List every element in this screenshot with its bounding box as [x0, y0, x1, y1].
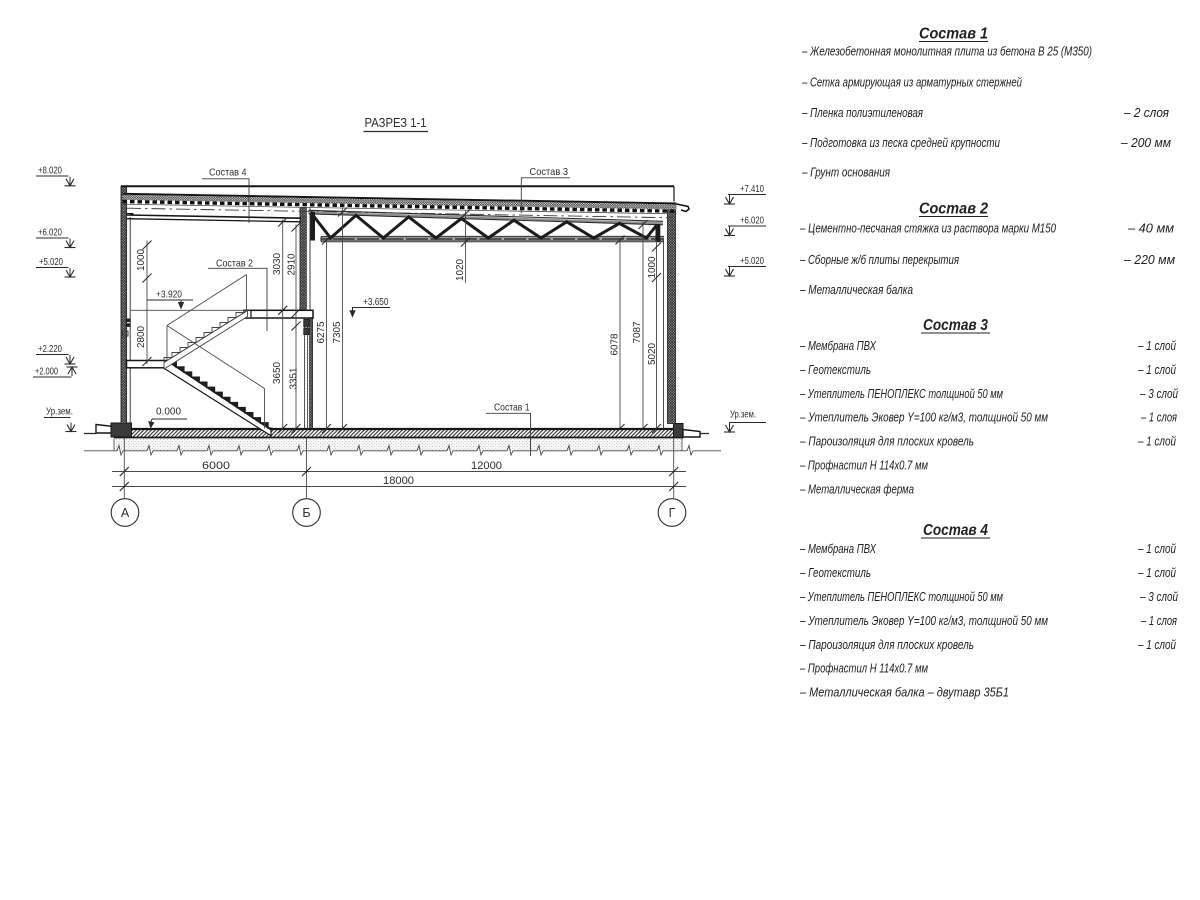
svg-text:– 1 слой: – 1 слой — [1137, 339, 1176, 353]
svg-text:3351: 3351 — [288, 367, 300, 389]
svg-text:+5.020: +5.020 — [740, 255, 764, 267]
svg-text:– Пленка полиэтиленовая: – Пленка полиэтиленовая — [801, 106, 923, 120]
svg-text:– Утеплитель Эковер Y=100 кг/м: – Утеплитель Эковер Y=100 кг/м3, толщино… — [799, 614, 1048, 628]
svg-text:5020: 5020 — [646, 343, 658, 365]
svg-text:– Металлическая балка – двутав: – Металлическая балка – двутавр 35Б1 — [799, 686, 1009, 700]
svg-text:– 1 слоя: – 1 слоя — [1140, 614, 1177, 628]
svg-text:– Металлическая ферма: – Металлическая ферма — [799, 482, 914, 496]
svg-text:– Пароизоляция для плоских кро: – Пароизоляция для плоских кровель — [799, 435, 974, 449]
svg-text:+3.920: +3.920 — [156, 289, 182, 301]
svg-text:2800: 2800 — [135, 326, 147, 348]
svg-text:– 200 мм: – 200 мм — [1120, 136, 1171, 150]
svg-text:7305: 7305 — [331, 321, 343, 343]
svg-text:+2.000: +2.000 — [35, 366, 58, 378]
svg-text:– Железобетонная монолитная п: – Железобетонная монолитная плита из бет… — [801, 45, 1092, 59]
svg-text:– Сборные ж/б плиты перекрытия: – Сборные ж/б плиты перекрытия — [799, 253, 959, 267]
svg-text:6275: 6275 — [315, 321, 327, 343]
svg-text:– 2 слоя: – 2 слоя — [1123, 106, 1169, 120]
svg-text:1000: 1000 — [646, 256, 658, 278]
svg-text:– Утеплитель ПЕНОПЛЕКС толщино: – Утеплитель ПЕНОПЛЕКС толщиной 50 мм — [799, 590, 1003, 604]
svg-text:1020: 1020 — [454, 259, 466, 281]
svg-text:– Мембрана ПВХ: – Мембрана ПВХ — [799, 542, 876, 556]
svg-text:2910: 2910 — [286, 253, 298, 275]
svg-text:6078: 6078 — [609, 333, 621, 355]
svg-text:– Металлическая балка: – Металлическая балка — [799, 283, 913, 297]
svg-text:– 40 мм: – 40 мм — [1127, 222, 1174, 236]
svg-text:Ур.зем.: Ур.зем. — [46, 406, 73, 418]
svg-text:– Профнастил Н 114х0.7 мм: – Профнастил Н 114х0.7 мм — [799, 459, 928, 473]
svg-text:РАЗРЕЗ 1-1: РАЗРЕЗ 1-1 — [365, 115, 427, 130]
svg-text:7087: 7087 — [631, 321, 643, 343]
svg-text:12000: 12000 — [471, 460, 502, 472]
svg-text:Состав 2: Состав 2 — [919, 201, 988, 218]
svg-text:3650: 3650 — [271, 362, 283, 384]
svg-text:– 220 мм: – 220 мм — [1123, 253, 1175, 267]
svg-text:Состав 3: Состав 3 — [530, 166, 569, 178]
svg-text:– Профнастил Н 114х0.7 мм: – Профнастил Н 114х0.7 мм — [799, 662, 928, 676]
svg-text:А: А — [121, 506, 130, 520]
svg-text:+3.650: +3.650 — [363, 296, 389, 308]
svg-text:– 1 слой: – 1 слой — [1137, 363, 1176, 377]
svg-text:– Пароизоляция для плоских кро: – Пароизоляция для плоских кровель — [799, 638, 974, 652]
svg-text:+6.020: +6.020 — [740, 215, 764, 227]
svg-text:– Утеплитель Эковер Y=100 кг/м: – Утеплитель Эковер Y=100 кг/м3, толщино… — [799, 411, 1048, 425]
svg-text:Г: Г — [669, 506, 676, 520]
svg-text:– Сетка армирующая из арматурн: – Сетка армирующая из арматурных стержне… — [801, 76, 1022, 90]
svg-text:– 3 слой: – 3 слой — [1139, 387, 1178, 401]
svg-text:6000: 6000 — [202, 460, 230, 472]
svg-text:Состав 4: Состав 4 — [923, 522, 988, 539]
svg-text:– 3 слой: – 3 слой — [1139, 590, 1178, 604]
svg-text:– 1 слой: – 1 слой — [1137, 542, 1176, 556]
svg-text:– Геотекстиль: – Геотекстиль — [799, 363, 871, 377]
svg-text:Состав 1: Состав 1 — [494, 402, 530, 414]
svg-text:+2.220: +2.220 — [38, 343, 62, 355]
svg-text:1000: 1000 — [135, 249, 147, 271]
svg-text:– 1 слой: – 1 слой — [1137, 638, 1176, 652]
svg-text:– 1 слой: – 1 слой — [1137, 566, 1176, 580]
svg-text:– 1 слой: – 1 слой — [1137, 435, 1176, 449]
svg-text:– 1 слоя: – 1 слоя — [1140, 411, 1177, 425]
svg-text:+6.020: +6.020 — [38, 227, 62, 239]
svg-text:– Подготовка из песка средней: – Подготовка из песка средней крупности — [801, 136, 1000, 150]
svg-text:3030: 3030 — [271, 253, 283, 275]
svg-text:– Грунт основания: – Грунт основания — [801, 166, 890, 180]
svg-text:Б: Б — [302, 506, 310, 520]
svg-text:– Утеплитель ПЕНОПЛЕКС толщино: – Утеплитель ПЕНОПЛЕКС толщиной 50 мм — [799, 387, 1003, 401]
svg-text:0.000: 0.000 — [156, 406, 181, 418]
svg-text:18000: 18000 — [383, 475, 414, 487]
svg-text:Ур.зем.: Ур.зем. — [730, 409, 756, 421]
svg-text:Состав 3: Состав 3 — [923, 317, 988, 334]
svg-text:– Мембрана ПВХ: – Мембрана ПВХ — [799, 339, 876, 353]
svg-text:– Геотекстиль: – Геотекстиль — [799, 566, 871, 580]
svg-text:+8.020: +8.020 — [38, 165, 62, 177]
svg-text:+5.020: +5.020 — [39, 256, 63, 268]
svg-text:Состав 1: Состав 1 — [919, 26, 988, 43]
svg-text:+7.410: +7.410 — [740, 183, 764, 195]
svg-text:– Цементно-песчаная стяжка из: – Цементно-песчаная стяжка из раствора м… — [799, 222, 1056, 236]
svg-text:Состав 2: Состав 2 — [216, 258, 253, 270]
svg-text:Состав 4: Состав 4 — [209, 167, 247, 179]
